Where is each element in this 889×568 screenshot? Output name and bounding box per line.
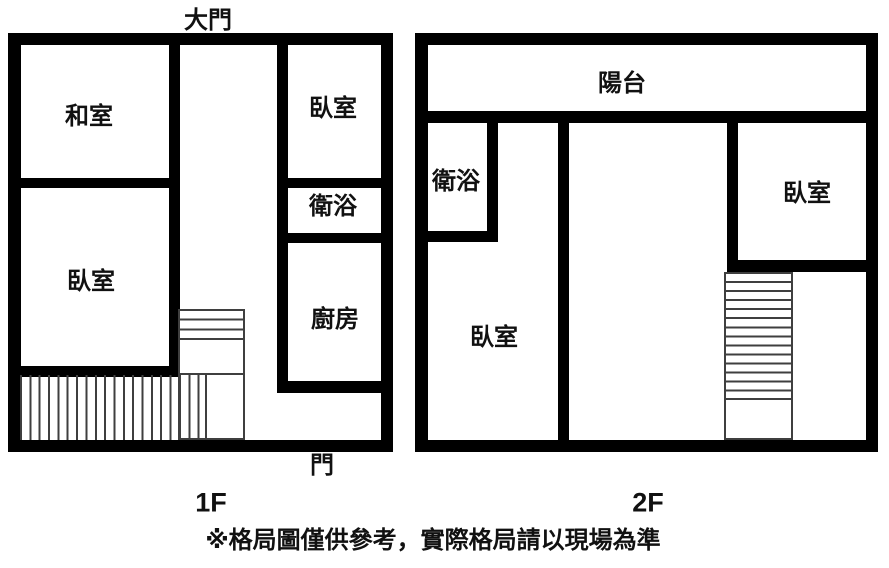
wall-2f-outer-left	[415, 33, 428, 452]
wall-1f-bedroom-bathroom	[277, 178, 393, 188]
floor1-label: 1F	[195, 490, 227, 517]
wall-1f-washitsu-bedroom	[8, 178, 180, 188]
disclaimer-text: ※格局圖僅供參考，實際格局請以現場為準	[205, 529, 660, 553]
room-label-balcony: 陽台	[598, 72, 646, 96]
room-label-washitsu: 和室	[65, 105, 113, 129]
room-label-bathroom-2f: 衛浴	[432, 170, 480, 194]
room-label-bedroom-2f-right: 臥室	[783, 182, 831, 206]
room-label-kitchen-1f: 廚房	[311, 308, 359, 332]
room-label-bedroom-1f-right: 臥室	[309, 97, 357, 121]
room-label-bathroom-1f: 衛浴	[309, 195, 357, 219]
wall-2f-center-vertical	[558, 123, 569, 440]
room-label-bedroom-2f-main: 臥室	[470, 326, 518, 350]
wall-2f-outer-bottom	[415, 440, 878, 452]
wall-2f-bathroom-right	[487, 123, 498, 242]
wall-2f-outer-right	[866, 33, 878, 452]
wall-2f-bathroom-bottom	[427, 231, 498, 242]
wall-1f-bathroom-kitchen	[277, 233, 393, 243]
stairs-1f-lower-treads	[20, 375, 207, 440]
room-label-bedroom-1f-left: 臥室	[67, 270, 115, 294]
wall-2f-outer-top	[415, 33, 878, 45]
wall-1f-outer-top	[8, 33, 393, 45]
wall-1f-rightcol-vertical	[277, 33, 288, 393]
wall-1f-outer-bottom	[8, 440, 393, 452]
floor-plan-canvas: 大門 門 1F 和室 臥室 臥室 衛浴 廚房 2F	[0, 0, 889, 568]
main-door-label: 大門	[184, 9, 232, 33]
wall-1f-kitchen-bottom	[277, 381, 393, 393]
stairs-2f-treads	[726, 272, 791, 400]
stairs-1f-upper-treads	[180, 309, 243, 341]
door-label: 門	[310, 454, 334, 478]
wall-2f-bedroom-right-left	[727, 123, 738, 272]
wall-2f-balcony-bottom	[427, 111, 866, 123]
wall-2f-bedroom-right-bottom	[727, 260, 866, 272]
floor2-label: 2F	[632, 490, 664, 517]
